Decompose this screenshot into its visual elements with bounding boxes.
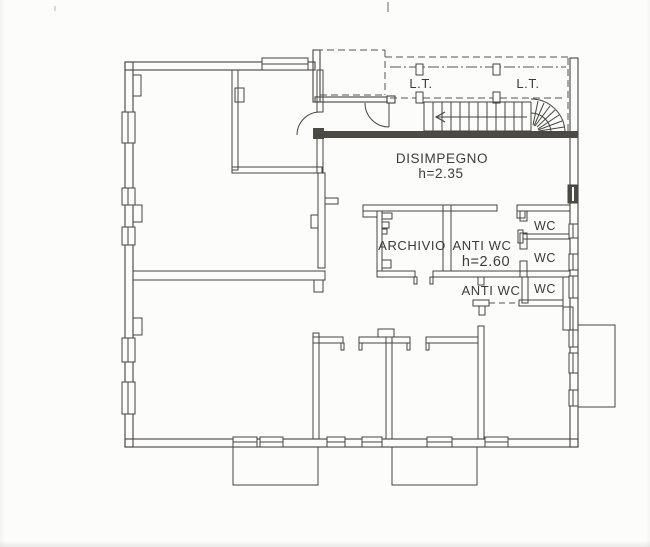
interior-walls xyxy=(133,70,484,439)
room-label-wc-lower: WC xyxy=(534,282,556,296)
room-label-disimpegno: DISIMPEGNO xyxy=(396,151,488,166)
room-label-wc-middle: WC xyxy=(534,251,556,265)
room-labels: L.T. L.T. DISIMPEGNO h=2.35 ARCHIVIO ANT… xyxy=(378,76,556,298)
room-label-anti-wc-upper: ANTI WC xyxy=(452,238,511,253)
dark-window xyxy=(568,185,578,203)
floor-plan-sheet: L.T. L.T. DISIMPEGNO h=2.35 ARCHIVIO ANT… xyxy=(0,0,650,547)
room-label-anti-wc-lower: ANTI WC xyxy=(461,283,520,298)
room-height-disimpegno: h=2.35 xyxy=(418,166,463,181)
door-arc-stair xyxy=(365,103,389,127)
room-label-wc-top: WC xyxy=(534,219,556,233)
stair-direction-arrow xyxy=(436,112,527,122)
door-swings xyxy=(297,103,389,135)
scan-artifact xyxy=(55,2,388,12)
balcony-south-left xyxy=(233,447,318,485)
balconies xyxy=(233,325,615,485)
room-height-anti-wc: h=2.60 xyxy=(462,254,510,270)
room-label-lt-right: L.T. xyxy=(516,76,539,91)
staircase xyxy=(424,99,566,133)
balcony-east xyxy=(578,325,615,407)
room-label-lt-left: L.T. xyxy=(409,76,432,91)
floor-plan-canvas: L.T. L.T. DISIMPEGNO h=2.35 ARCHIVIO ANT… xyxy=(0,0,650,547)
room-label-archivio: ARCHIVIO xyxy=(378,238,446,253)
balcony-south-right xyxy=(392,447,477,485)
